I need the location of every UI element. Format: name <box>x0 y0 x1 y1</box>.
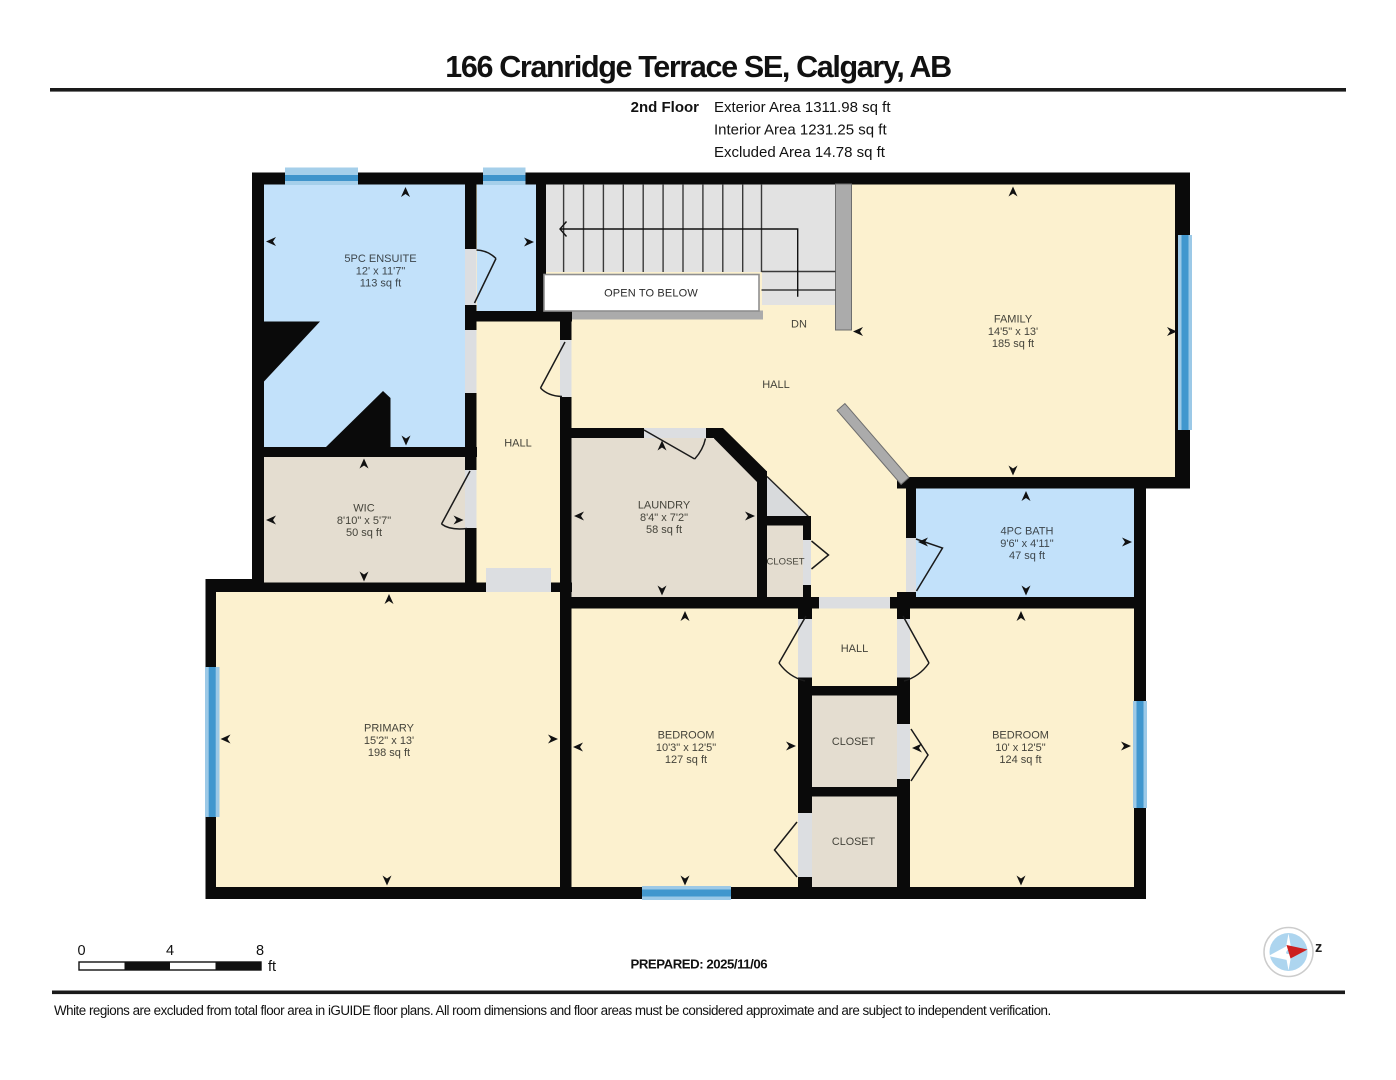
svg-text:ft: ft <box>268 959 276 975</box>
svg-text:BEDROOM: BEDROOM <box>658 730 715 742</box>
svg-text:HALL: HALL <box>762 379 790 391</box>
svg-text:8'10" x 5'7": 8'10" x 5'7" <box>337 515 391 527</box>
svg-text:10' x 12'5": 10' x 12'5" <box>995 742 1045 754</box>
svg-text:Interior Area 1231.25 sq ft: Interior Area 1231.25 sq ft <box>714 122 887 139</box>
svg-text:127 sq ft: 127 sq ft <box>665 754 707 766</box>
svg-text:HALL: HALL <box>504 438 532 450</box>
svg-text:CLOSET: CLOSET <box>832 836 876 848</box>
svg-text:185 sq ft: 185 sq ft <box>992 338 1034 350</box>
svg-text:White regions are excluded fro: White regions are excluded from total fl… <box>54 1003 1051 1018</box>
svg-text:CLOSET: CLOSET <box>832 736 876 748</box>
svg-text:58 sq ft: 58 sq ft <box>646 524 682 536</box>
svg-text:FAMILY: FAMILY <box>994 314 1033 326</box>
svg-text:8: 8 <box>256 943 264 959</box>
svg-text:14'5" x 13': 14'5" x 13' <box>988 326 1038 338</box>
svg-text:124 sq ft: 124 sq ft <box>999 754 1041 766</box>
svg-text:10'3" x 12'5": 10'3" x 12'5" <box>656 742 716 754</box>
svg-text:Excluded Area 14.78 sq ft: Excluded Area 14.78 sq ft <box>714 144 886 161</box>
svg-text:HALL: HALL <box>841 643 869 655</box>
svg-text:OPEN TO BELOW: OPEN TO BELOW <box>604 288 698 300</box>
svg-text:47 sq ft: 47 sq ft <box>1009 550 1045 562</box>
svg-text:LAUNDRY: LAUNDRY <box>638 500 691 512</box>
svg-text:113 sq ft: 113 sq ft <box>360 278 401 290</box>
svg-text:50 sq ft: 50 sq ft <box>346 527 382 539</box>
svg-text:Exterior Area 1311.98 sq ft: Exterior Area 1311.98 sq ft <box>714 99 891 116</box>
svg-text:12' x 11'7": 12' x 11'7" <box>356 265 406 277</box>
svg-text:DN: DN <box>791 319 807 331</box>
svg-text:15'2" x 13': 15'2" x 13' <box>364 735 414 747</box>
svg-text:CLOSET: CLOSET <box>766 557 804 568</box>
svg-text:WIC: WIC <box>353 503 374 515</box>
svg-text:166 Cranridge Terrace SE, Calg: 166 Cranridge Terrace SE, Calgary, AB <box>445 50 951 84</box>
svg-text:4: 4 <box>166 943 174 959</box>
svg-text:PREPARED: 2025/11/06: PREPARED: 2025/11/06 <box>631 957 768 972</box>
svg-text:198 sq ft: 198 sq ft <box>368 747 410 759</box>
svg-text:4PC BATH: 4PC BATH <box>1001 526 1054 538</box>
svg-text:8'4" x 7'2": 8'4" x 7'2" <box>640 512 688 524</box>
svg-text:2nd Floor: 2nd Floor <box>631 99 699 116</box>
svg-text:PRIMARY: PRIMARY <box>364 723 415 735</box>
svg-text:0: 0 <box>77 943 85 959</box>
svg-text:BEDROOM: BEDROOM <box>992 730 1049 742</box>
svg-text:5PC ENSUITE: 5PC ENSUITE <box>344 253 416 265</box>
svg-text:z: z <box>1315 940 1322 956</box>
svg-text:9'6" x 4'11": 9'6" x 4'11" <box>1000 538 1053 550</box>
